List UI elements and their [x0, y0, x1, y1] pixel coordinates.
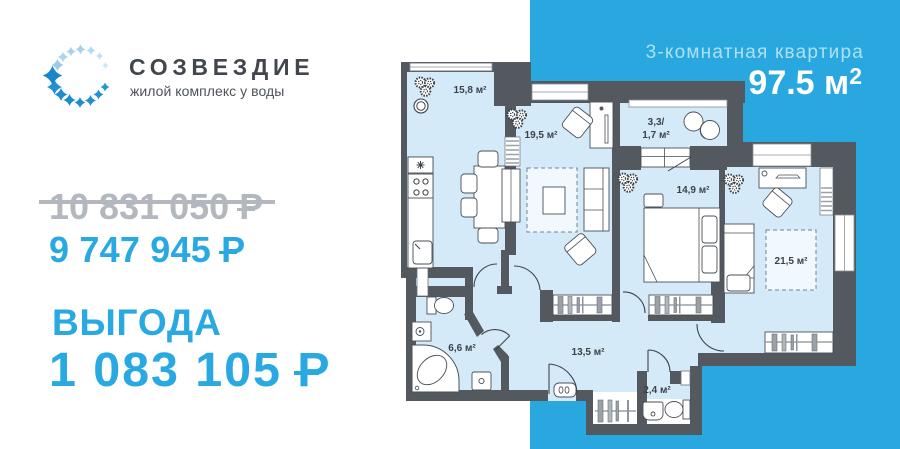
svg-text:14,9 м²: 14,9 м² — [677, 185, 711, 196]
svg-text:1,7 м²: 1,7 м² — [642, 130, 670, 141]
svg-text:2,4 м²: 2,4 м² — [643, 385, 671, 396]
svg-text:3,3/: 3,3/ — [648, 117, 665, 128]
svg-text:13,5 м²: 13,5 м² — [572, 347, 606, 358]
svg-text:6,6 м²: 6,6 м² — [448, 343, 476, 354]
svg-text:15,8 м²: 15,8 м² — [454, 85, 488, 96]
svg-text:21,5 м²: 21,5 м² — [775, 256, 809, 267]
svg-text:19,5 м²: 19,5 м² — [525, 130, 559, 141]
